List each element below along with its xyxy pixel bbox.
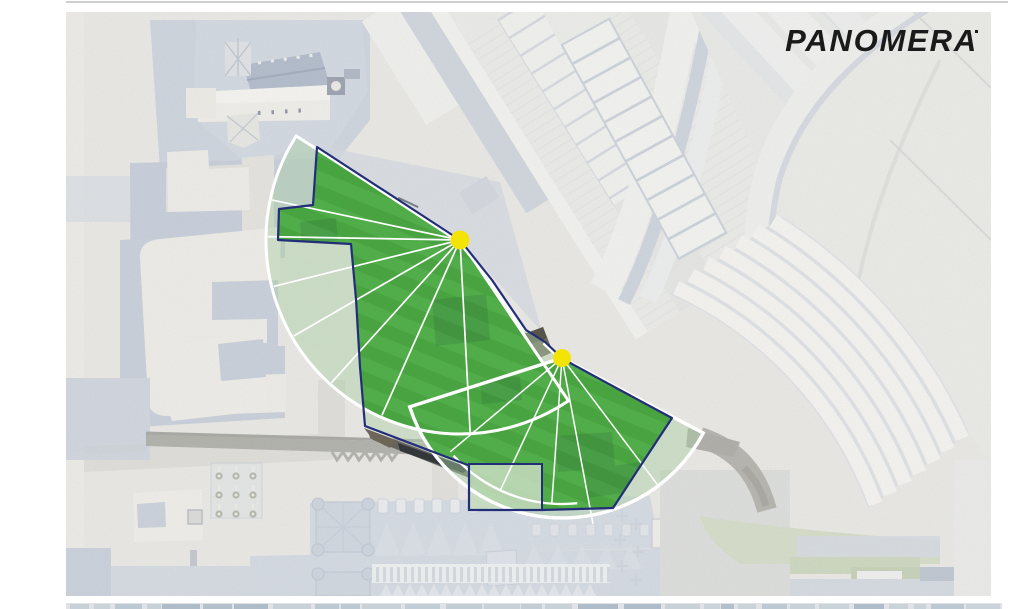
svg-text:PANOMERA: PANOMERA — [785, 23, 978, 58]
